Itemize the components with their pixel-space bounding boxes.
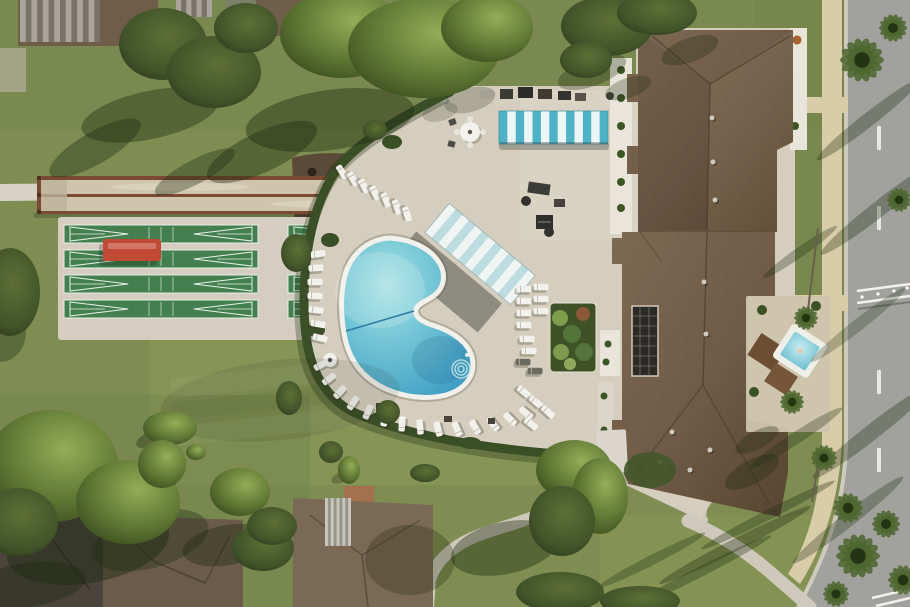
bocce-endzone-west [41, 180, 67, 211]
tree-canopy-dark [529, 486, 595, 556]
colonnade-lower [600, 330, 620, 376]
hedge-bump [382, 135, 402, 149]
nook-shrubs [624, 452, 676, 488]
lounge-chair [517, 310, 532, 317]
deck-palm-clump [376, 400, 400, 424]
lounge-chair [517, 286, 532, 293]
guardrail-post [860, 295, 863, 298]
driveway-patch [0, 48, 26, 92]
lounge-chair [517, 322, 532, 329]
roof-vent [710, 116, 715, 121]
pergola-slats-slat [37, 0, 43, 42]
roof-vent [702, 280, 707, 285]
pool-awning-long-stripe [583, 111, 591, 144]
pool-shallow-highlight [335, 252, 425, 328]
red-bench-slat [108, 243, 156, 249]
pergola-slats-2-slat [202, 0, 207, 17]
palm-crown-center [843, 503, 854, 514]
potted-plant [757, 305, 767, 315]
patio-table-chair [467, 142, 473, 148]
pool-awning-long [499, 111, 608, 144]
planter-shrub-red [576, 307, 590, 321]
lounge-chair [534, 296, 549, 303]
palm-crown-center [898, 575, 909, 586]
patio-table-chair [467, 116, 473, 122]
aerial-photo [0, 0, 910, 607]
grill-round [521, 196, 531, 206]
planter-shrub-dark [563, 325, 581, 343]
roof-vent [708, 448, 713, 453]
grill-cluster-side [554, 199, 565, 207]
deck-palm-clump [363, 120, 387, 140]
pergola-slats-slat [94, 0, 100, 42]
pool-awning-long-stripe [549, 111, 557, 144]
road-lane-dash [877, 126, 881, 150]
deck-palm-clump [281, 234, 311, 272]
aerial-photo-stage: Aerial drone view of community clubhouse… [0, 0, 910, 607]
pool-awning-long-stripe [499, 111, 507, 144]
roof-vent [688, 468, 693, 473]
tree-canopy [138, 440, 186, 488]
metal-roof-strip-slat [328, 498, 331, 546]
lounge-chair [522, 348, 537, 355]
bbq-grill [518, 87, 533, 98]
pergola-slats-slat [49, 0, 55, 42]
hedge-bump [459, 437, 481, 449]
colonnade-plant [617, 150, 625, 158]
lounge-chair [534, 284, 549, 291]
grill-round [544, 227, 554, 237]
lounge-chair [416, 419, 424, 435]
bocce-post [37, 193, 41, 197]
pool-awning-long-stripe [566, 111, 574, 144]
lounge-chair-fold [417, 430, 423, 431]
metal-roof-strip-slat [339, 498, 342, 546]
flower-shrub [793, 36, 802, 45]
pergola-slats-slat [83, 0, 89, 42]
patio-table-chair [480, 129, 486, 135]
guardrail-post [905, 286, 908, 289]
metal-roof-strip-slat [334, 498, 337, 546]
guardrail-post [876, 292, 879, 295]
colonnade-plant [617, 204, 625, 212]
bbq-grill [558, 91, 571, 100]
lounge-chair [517, 298, 532, 305]
pergola-slats-slat [71, 0, 77, 42]
tree-canopy [186, 444, 206, 460]
palm-crown-center [854, 52, 869, 67]
tree-canopy-dark [214, 3, 278, 53]
roof-vent [704, 332, 709, 337]
bbq-grill [538, 89, 552, 99]
palm-crown-center [888, 23, 898, 33]
planter-shrub-light [564, 358, 576, 370]
deck-palm-clump [410, 464, 440, 482]
potted-plant [749, 387, 759, 397]
palm-crown-center [802, 314, 810, 322]
patio-table-chair [454, 129, 460, 135]
awning-long-shadow [499, 142, 609, 150]
colonnade-plant [617, 122, 625, 130]
tree-shadow [365, 525, 455, 595]
tree-trunk [308, 168, 317, 177]
deck-palm-clump [319, 441, 343, 463]
palm-crown-center [881, 519, 891, 529]
deck-box [575, 93, 586, 101]
planter-shrub-dark [575, 343, 593, 361]
palm-crown-center [895, 196, 903, 204]
pool-ladder [465, 353, 469, 357]
roof-vent [670, 430, 675, 435]
palm-crown-center [850, 548, 865, 563]
hedge-bump [321, 233, 339, 247]
tree-canopy [210, 468, 270, 516]
lounge-chair [516, 359, 531, 366]
lounge-chair [398, 416, 406, 431]
colonnade-plant-lower [603, 359, 610, 366]
lounge-chair [308, 279, 323, 286]
red-bench [103, 239, 161, 261]
lounge-chair [534, 308, 549, 315]
colonnade-plant [617, 178, 625, 186]
bbq-grill [500, 89, 513, 99]
pool-awning-long-stripe [533, 111, 541, 144]
palm-crown-center [788, 398, 796, 406]
road-lane-dash [877, 370, 881, 394]
pool-awning-long-stripe [600, 111, 608, 144]
planter-shrub [552, 310, 568, 326]
pergola-slats-2-slat [191, 0, 196, 17]
lounge-chair [308, 264, 323, 272]
colonnade-plant-lower [605, 341, 612, 348]
roof-vent [711, 160, 716, 165]
tree-canopy [338, 456, 360, 484]
pergola-slats-slat [26, 0, 32, 42]
pergola-frame [632, 306, 658, 376]
tree-canopy [143, 411, 197, 445]
side-table [444, 416, 452, 422]
palm-crown-center [831, 589, 840, 598]
lounge-chair [528, 368, 543, 375]
tree-canopy-dark [560, 42, 612, 78]
palm-crown-center [819, 453, 828, 462]
bocce-post [37, 176, 41, 180]
lounge-chair [520, 336, 535, 343]
lounge-chair [307, 292, 322, 299]
metal-roof-strip-slat [345, 498, 348, 546]
roof-vent [713, 198, 718, 203]
pergola-slats-slat [60, 0, 66, 42]
road-lane-dash [877, 448, 881, 472]
tree-canopy-dark [247, 507, 297, 545]
deck-palm-clump [276, 381, 302, 415]
colonnade-plant-lower [601, 393, 608, 400]
planter-shrub [553, 344, 569, 360]
side-table [488, 418, 495, 424]
bocce-post [37, 210, 41, 214]
pool-awning-long-stripe [516, 111, 524, 144]
patio-table-umbrella-hole [468, 130, 472, 134]
